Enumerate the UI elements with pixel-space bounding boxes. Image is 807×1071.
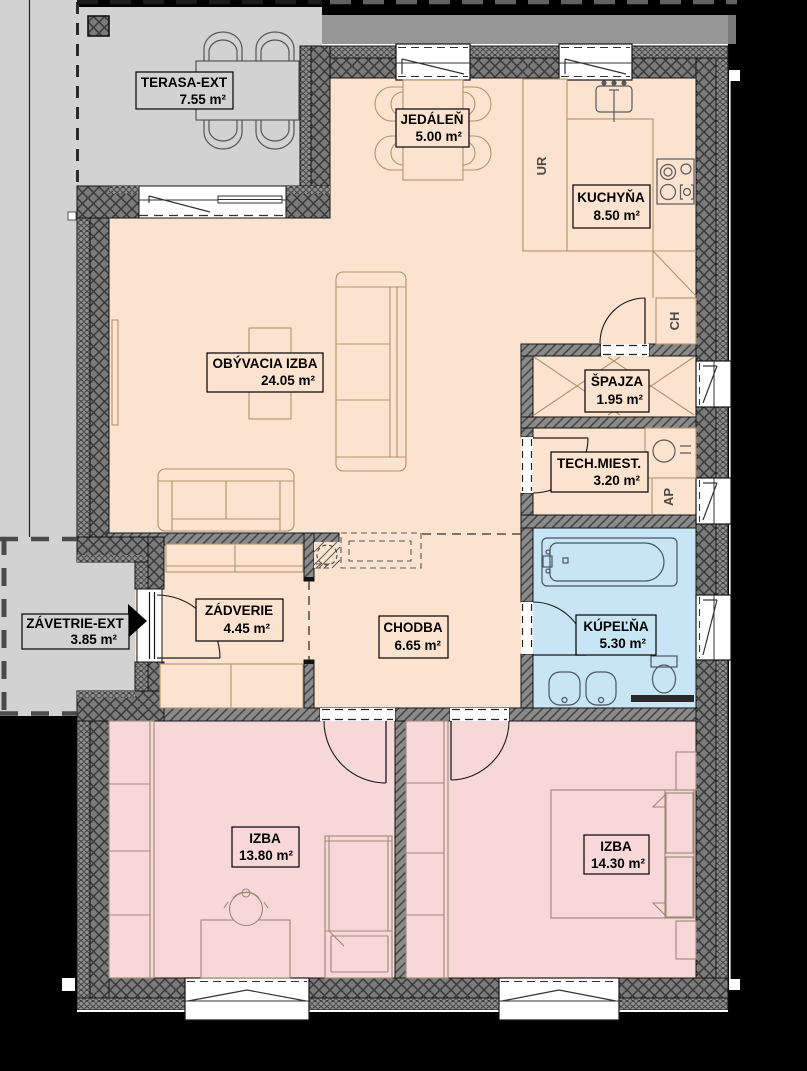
svg-text:24.05 m²: 24.05 m² (261, 373, 316, 388)
svg-text:7.55 m²: 7.55 m² (179, 92, 226, 107)
svg-text:OBÝVACIA IZBA: OBÝVACIA IZBA (212, 356, 317, 371)
svg-text:KUCHYŇA: KUCHYŇA (577, 190, 645, 205)
svg-text:3.85 m²: 3.85 m² (70, 632, 117, 647)
svg-text:AP: AP (661, 488, 676, 506)
svg-text:ŠPAJZA: ŠPAJZA (591, 374, 644, 389)
svg-text:JEDÁLEŇ: JEDÁLEŇ (400, 112, 463, 127)
svg-text:IZBA: IZBA (600, 839, 632, 854)
svg-text:5.30 m²: 5.30 m² (599, 636, 646, 651)
svg-text:IZBA: IZBA (249, 831, 281, 846)
svg-text:CHODBA: CHODBA (383, 620, 442, 635)
svg-text:TERASA-EXT: TERASA-EXT (141, 75, 228, 90)
svg-text:14.30 m²: 14.30 m² (591, 856, 646, 871)
svg-text:13.80 m²: 13.80 m² (239, 848, 294, 863)
svg-text:4.45 m²: 4.45 m² (223, 621, 270, 636)
svg-text:ZÁVETRIE-EXT: ZÁVETRIE-EXT (26, 616, 124, 631)
svg-text:KÚPEĽŇA: KÚPEĽŇA (583, 619, 649, 634)
svg-text:6.65 m²: 6.65 m² (394, 638, 441, 653)
svg-text:CH: CH (667, 312, 682, 331)
svg-text:TECH.MIEST.: TECH.MIEST. (557, 456, 641, 471)
svg-text:UR: UR (534, 156, 549, 175)
svg-text:5.00 m²: 5.00 m² (415, 129, 462, 144)
svg-text:8.50 m²: 8.50 m² (593, 208, 640, 223)
svg-text:ZÁDVERIE: ZÁDVERIE (205, 603, 273, 618)
svg-text:1.95 m²: 1.95 m² (596, 392, 643, 407)
svg-text:3.20 m²: 3.20 m² (593, 473, 640, 488)
